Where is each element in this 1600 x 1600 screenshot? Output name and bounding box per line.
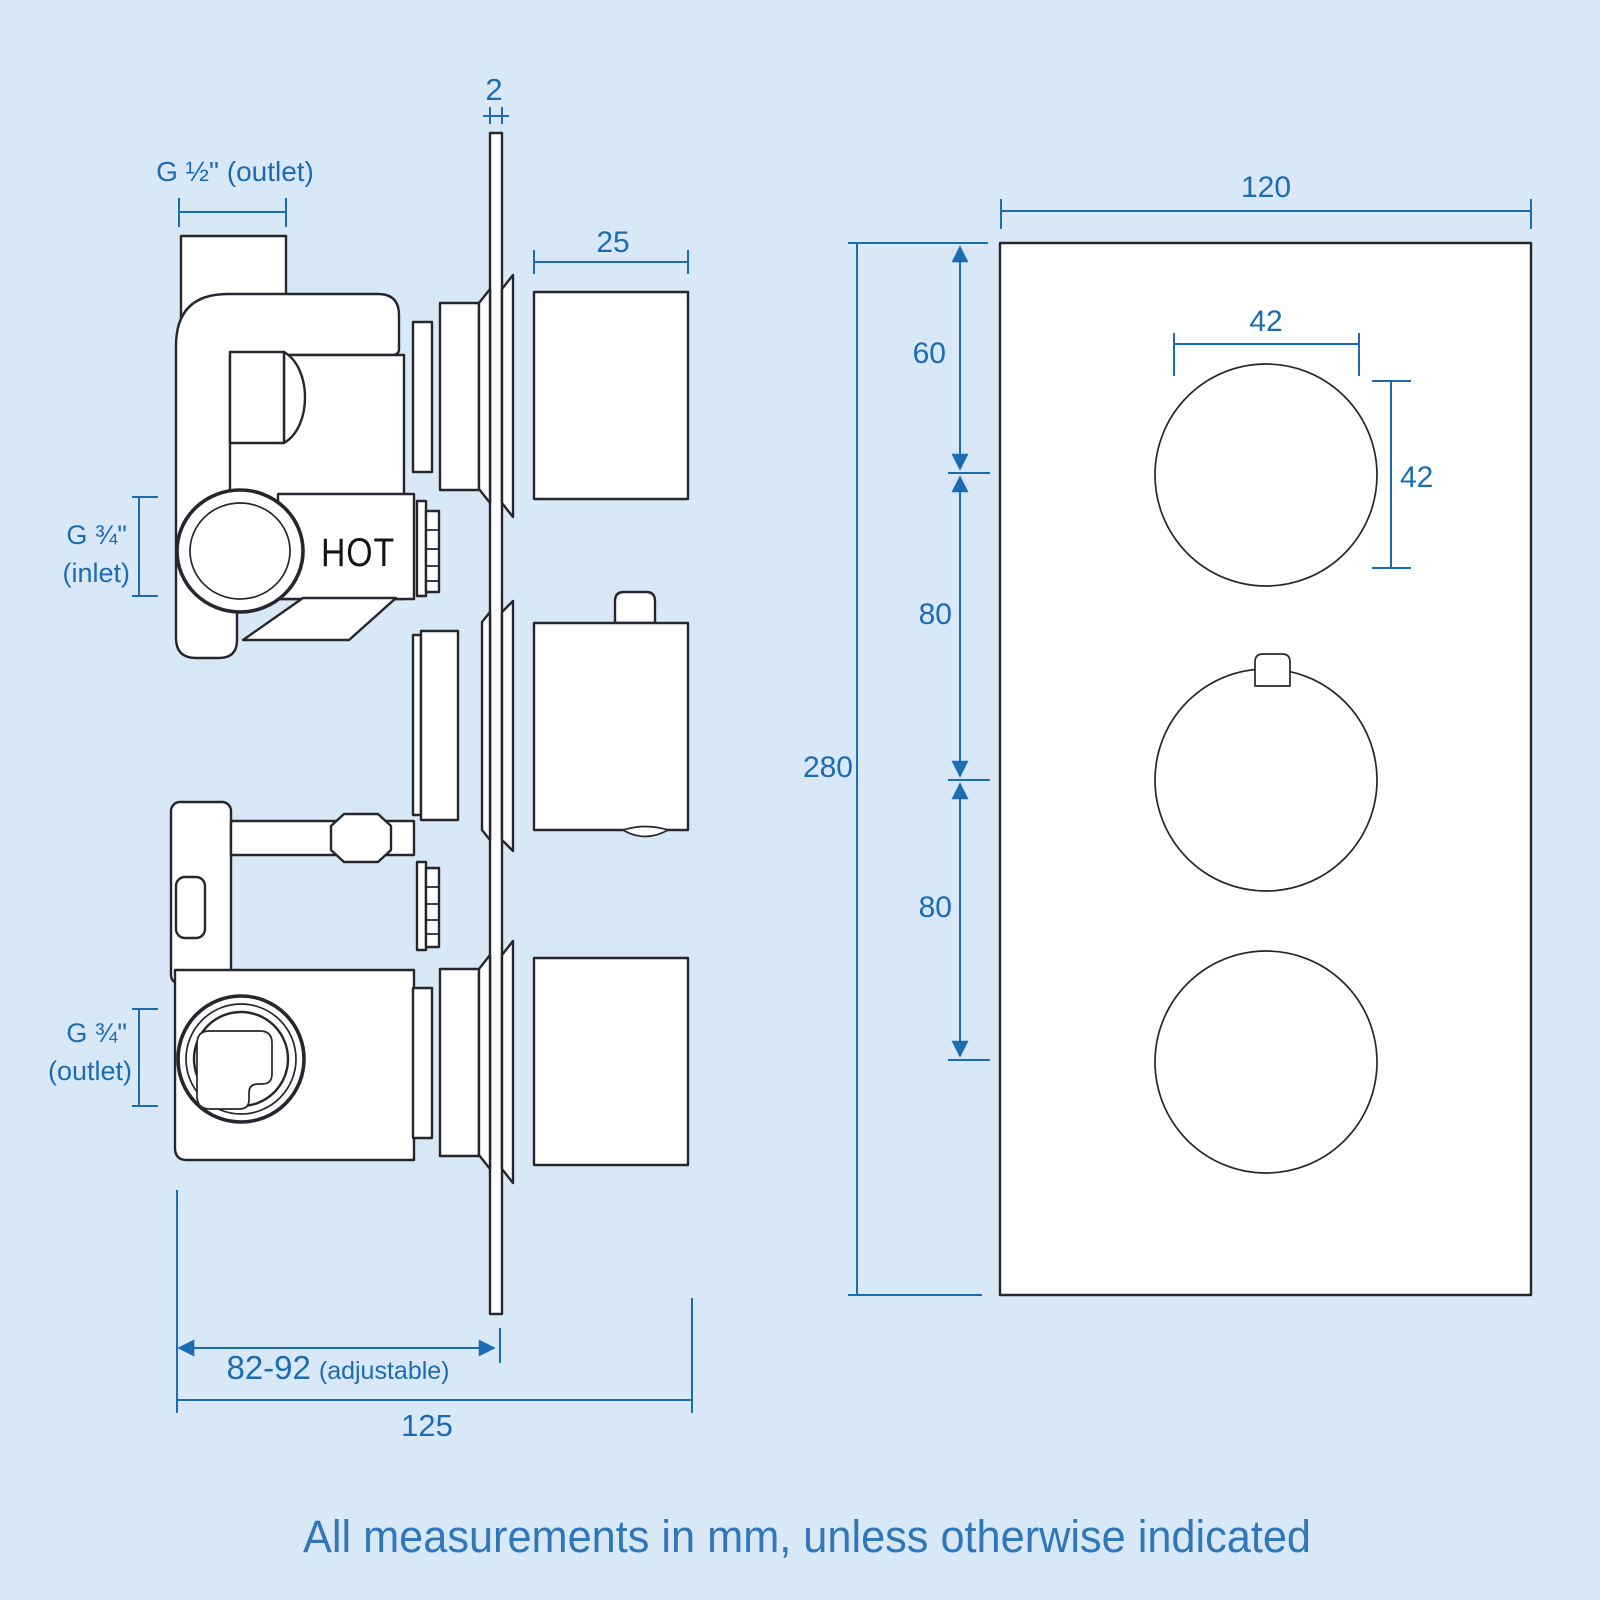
diverter-tab-front [1255, 654, 1290, 686]
footer-note: All measurements in mm, unless otherwise… [303, 1511, 1311, 1562]
hot-label: HOT [321, 531, 395, 575]
middle-knob-side [534, 623, 688, 830]
knob-middle-front [1155, 669, 1377, 891]
dim-inlet-label-1: G ¾" [66, 520, 127, 550]
pipe-end-face [230, 352, 284, 443]
dim-height-label: 280 [803, 751, 853, 784]
top-knob-assembly [413, 275, 688, 517]
top-knob-side [534, 292, 688, 499]
dim-outlet-top-label: G ½" (outlet) [156, 156, 314, 187]
valve-technical-drawing: HOT G ½" (outlet) 2 25 G ¾" (inlet) G ¾"… [0, 0, 1600, 1600]
dim-outlet-top-lines [179, 198, 286, 227]
bottom-knob-assembly [413, 941, 688, 1183]
knob-top-front [1155, 364, 1377, 586]
dim-outlet-bottom-label-2: (outlet) [48, 1056, 132, 1086]
dim-height-lines [848, 243, 988, 1295]
knob-bottom-front [1155, 951, 1377, 1173]
dim-knob-dia-v-label: 42 [1400, 461, 1433, 494]
dim-inlet-lines [132, 497, 158, 596]
dim-overall-depth-label: 125 [401, 1408, 453, 1443]
front-view [1000, 243, 1531, 1295]
dim-spacing-lower-label: 80 [919, 891, 952, 924]
top-stem-ribs [426, 511, 439, 592]
dim-outlet-bottom-lines [132, 1009, 158, 1106]
diverter-tab-side [615, 592, 655, 623]
dim-knob-depth-label: 25 [596, 226, 629, 259]
lower-stem-ribs [426, 868, 439, 947]
dim-inlet-label-2: (inlet) [62, 558, 130, 588]
dim-spacing-upper-label: 80 [919, 598, 952, 631]
dim-top-offset-label: 60 [913, 337, 946, 370]
dim-adjust-label: 82-92(adjustable) [226, 1349, 449, 1386]
dim-knob-dia-h-label: 42 [1249, 305, 1282, 338]
wall-plate-side [490, 133, 502, 1314]
drawing-page: HOT G ½" (outlet) 2 25 G ¾" (inlet) G ¾"… [0, 0, 1600, 1600]
pipe-nut [331, 814, 391, 862]
lower-stem [417, 862, 426, 950]
side-view: HOT [171, 133, 688, 1314]
bottom-knob-side [534, 958, 688, 1165]
lower-bracket-slot [176, 877, 205, 938]
middle-knob-assembly [413, 592, 688, 851]
dim-chain-ticks [948, 473, 990, 1060]
dim-width-label: 120 [1241, 171, 1291, 204]
dim-plate-thickness-lines [483, 107, 509, 124]
top-stem [417, 501, 426, 596]
dim-plate-thickness-label: 2 [485, 72, 502, 107]
inlet-port-inner-ring [190, 503, 290, 599]
diverter-bump [623, 827, 668, 837]
dim-outlet-bottom-label-1: G ¾" [66, 1018, 127, 1048]
